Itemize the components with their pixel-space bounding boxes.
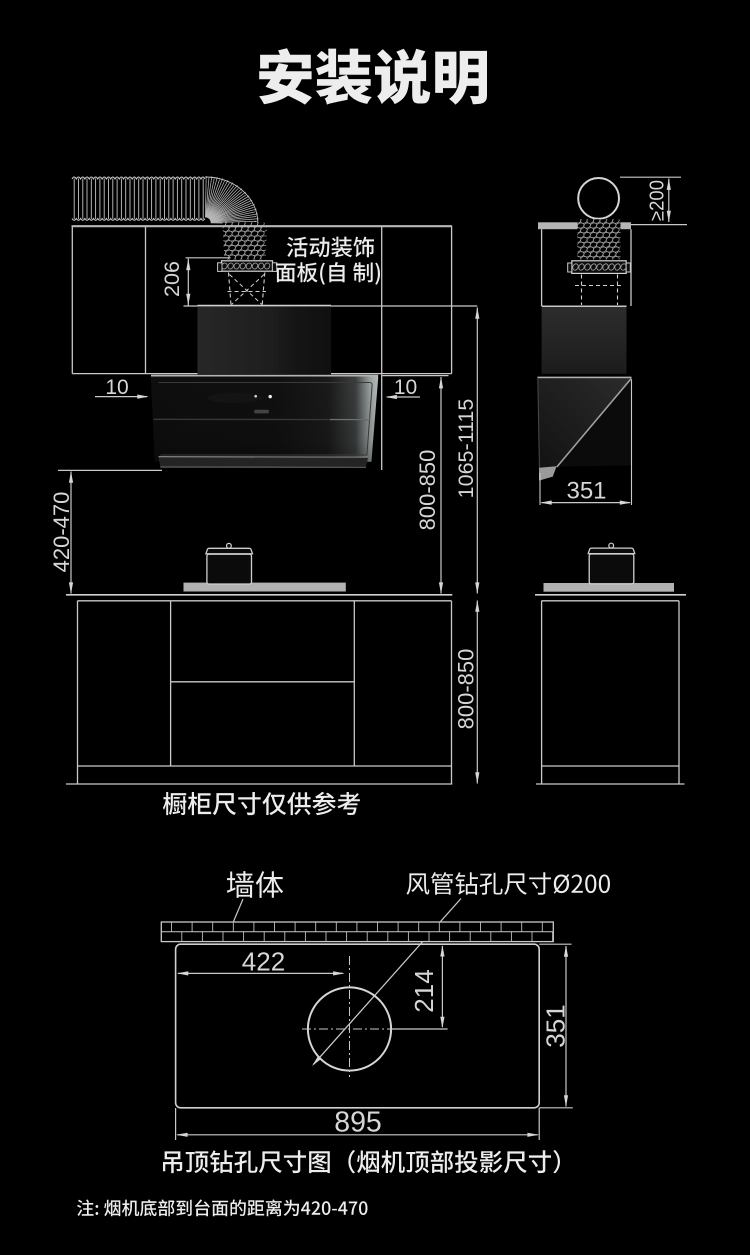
svg-text:351: 351 [566, 477, 606, 504]
svg-text:800-850: 800-850 [415, 450, 440, 531]
svg-text:351: 351 [540, 1004, 570, 1047]
svg-text:≥200: ≥200 [647, 180, 669, 221]
svg-text:10: 10 [394, 376, 417, 399]
svg-text:800-850: 800-850 [454, 649, 479, 730]
svg-text:422: 422 [242, 947, 285, 977]
svg-text:420-470: 420-470 [49, 492, 74, 573]
svg-text:214: 214 [409, 969, 439, 1012]
svg-text:206: 206 [160, 261, 184, 297]
svg-text:10: 10 [105, 376, 128, 399]
svg-text:895: 895 [334, 1107, 382, 1139]
svg-text:1065-1115: 1065-1115 [454, 399, 478, 499]
